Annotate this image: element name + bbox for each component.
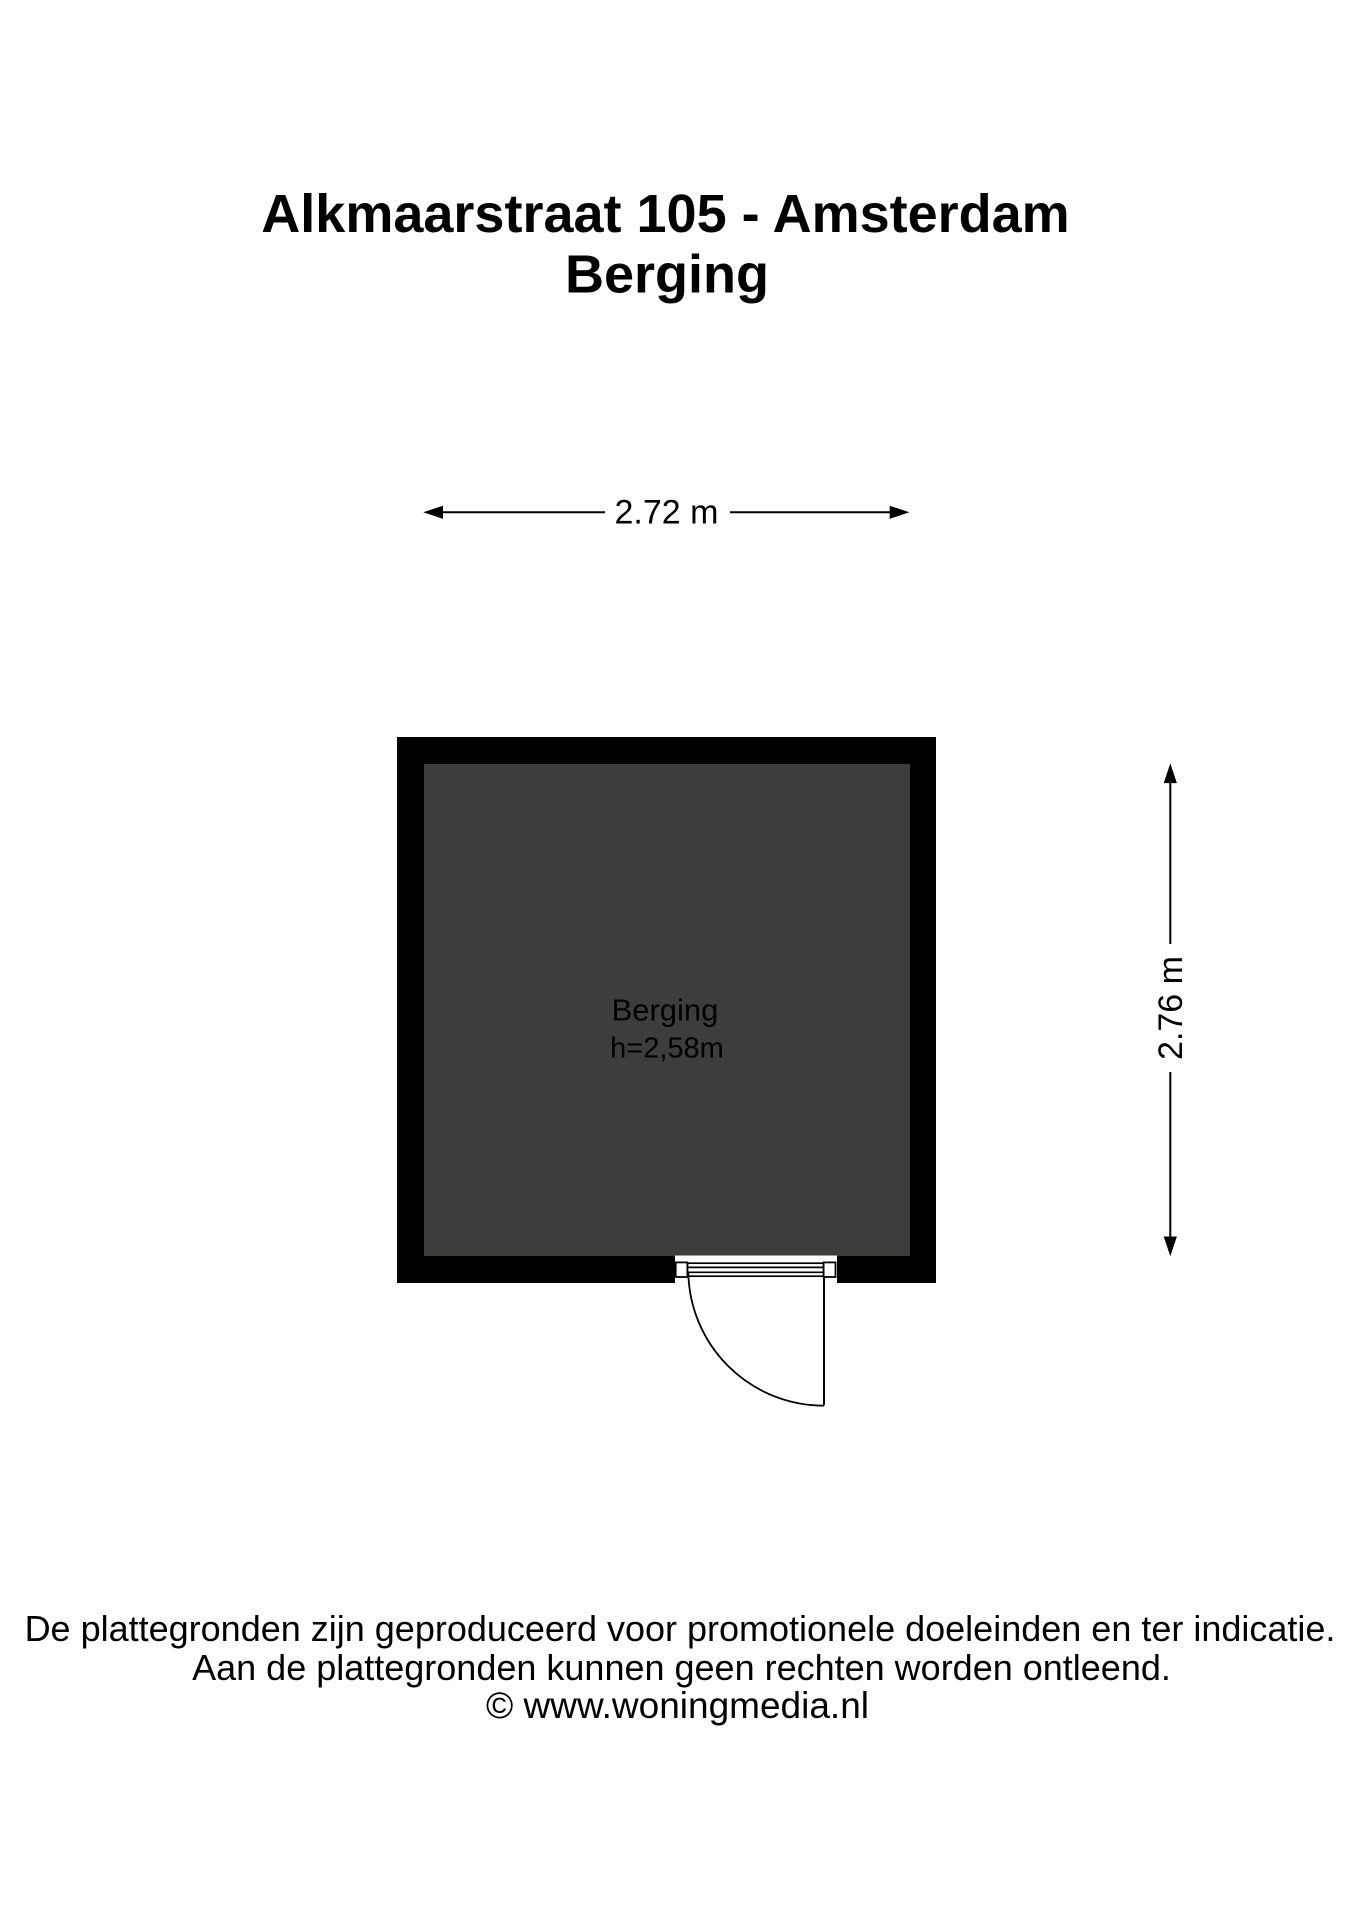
svg-text:h=2,58m: h=2,58m — [610, 1033, 724, 1065]
svg-text:2.72 m: 2.72 m — [615, 494, 719, 532]
svg-text:Aan de plattegronden kunnen ge: Aan de plattegronden kunnen geen rechten… — [192, 1647, 1171, 1688]
svg-text:De plattegronden zijn geproduc: De plattegronden zijn geproduceerd voor … — [25, 1608, 1336, 1649]
svg-text:2.76 m: 2.76 m — [1152, 956, 1190, 1060]
svg-text:© www.woningmedia.nl: © www.woningmedia.nl — [486, 1685, 869, 1726]
svg-text:Berging: Berging — [612, 993, 719, 1028]
svg-text:Alkmaarstraat 105 - Amsterdam: Alkmaarstraat 105 - Amsterdam — [261, 184, 1069, 244]
svg-text:Berging: Berging — [565, 245, 769, 305]
